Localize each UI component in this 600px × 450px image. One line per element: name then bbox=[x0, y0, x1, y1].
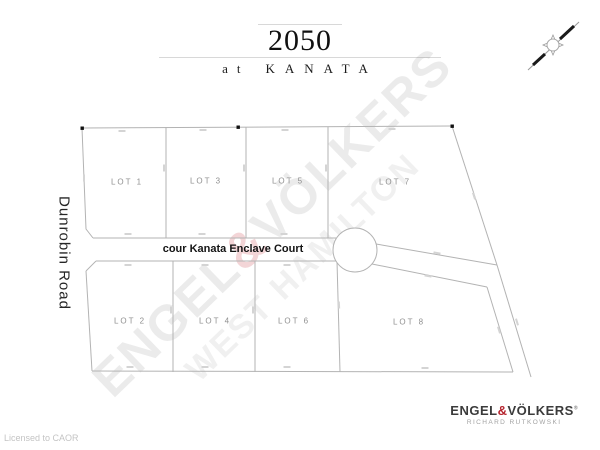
north-arrow-icon bbox=[520, 12, 586, 78]
survey-plan-drawing bbox=[0, 0, 600, 450]
brokerage-name: ENGEL&VÖLKERS® bbox=[450, 403, 578, 418]
brokerage-logo: ENGEL&VÖLKERS® RICHARD RUTKOWSKI bbox=[450, 403, 578, 426]
lot-label-3: LOT 3 bbox=[190, 177, 222, 186]
lot-plan-page: ENGEL&VÖLKERS WEST HAMILTON 2050 at KANA… bbox=[0, 0, 600, 450]
license-note: Licensed to CAOR bbox=[4, 433, 79, 443]
lot-label-7: LOT 7 bbox=[379, 178, 411, 187]
lot-label-6: LOT 6 bbox=[278, 317, 310, 326]
lot-label-2: LOT 2 bbox=[114, 317, 146, 326]
road-label-dunrobin: Dunrobin Road bbox=[56, 196, 73, 310]
lot-label-4: LOT 4 bbox=[199, 317, 231, 326]
registered-mark-icon: ® bbox=[574, 406, 578, 412]
lot-label-1: LOT 1 bbox=[111, 178, 143, 187]
lot-label-8: LOT 8 bbox=[393, 318, 425, 327]
lot-label-5: LOT 5 bbox=[272, 177, 304, 186]
logo-text: VÖLKERS bbox=[507, 403, 573, 418]
cul-de-sac bbox=[333, 228, 377, 272]
logo-text: ENGEL bbox=[450, 403, 497, 418]
road-label-court: cour Kanata Enclave Court bbox=[163, 243, 304, 255]
logo-ampersand: & bbox=[498, 403, 508, 418]
agent-name: RICHARD RUTKOWSKI bbox=[450, 419, 578, 426]
